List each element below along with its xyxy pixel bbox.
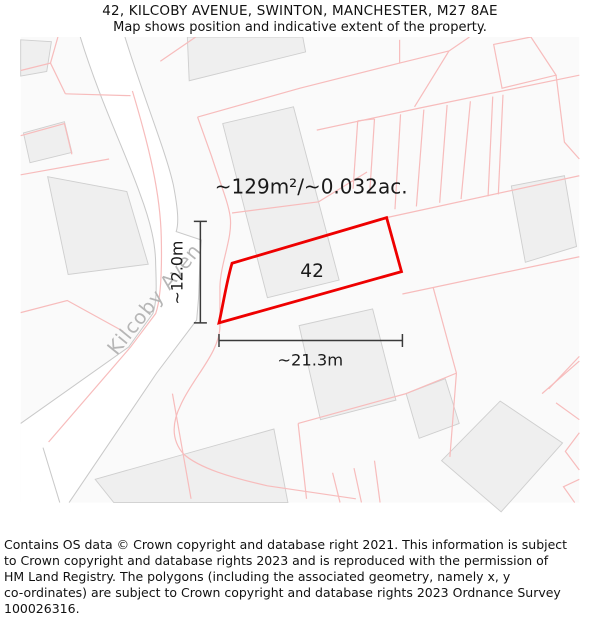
copyright-line: to Crown copyright and database rights 2…: [4, 553, 600, 569]
copyright-footer: Contains OS data © Crown copyright and d…: [0, 537, 600, 625]
copyright-line: co-ordinates) are subject to Crown copyr…: [4, 585, 600, 601]
copyright-line: Contains OS data © Crown copyright and d…: [4, 537, 600, 553]
building: [21, 40, 52, 76]
horizontal-dimension-label: ~21.3m: [277, 351, 343, 370]
map-header: 42, KILCOBY AVENUE, SWINTON, MANCHESTER,…: [0, 0, 600, 37]
vertical-dimension-label: ~12.0m: [168, 241, 187, 305]
map-canvas: Kilcoby Aven ~12.0m ~21.3m ~129m²/~0.032…: [0, 37, 600, 537]
plot-area-label: ~129m²/~0.032ac.: [215, 174, 408, 198]
property-map: Kilcoby Aven ~12.0m ~21.3m ~129m²/~0.032…: [0, 37, 600, 537]
copyright-line: 100026316.: [4, 601, 600, 617]
property-address-title: 42, KILCOBY AVENUE, SWINTON, MANCHESTER,…: [0, 0, 600, 19]
copyright-line: HM Land Registry. The polygons (includin…: [4, 569, 600, 585]
map-subtitle: Map shows position and indicative extent…: [0, 20, 600, 35]
plot-number-label: 42: [300, 261, 324, 282]
